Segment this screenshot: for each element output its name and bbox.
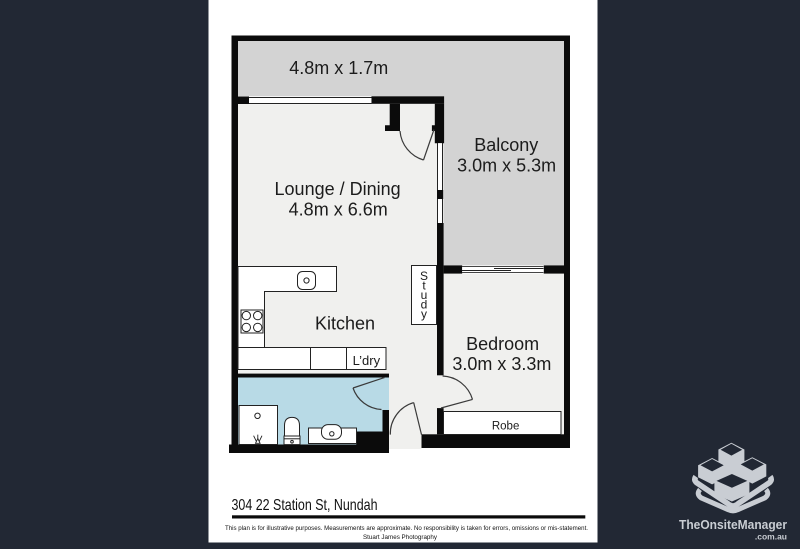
svg-text:Stuart James Photography: Stuart James Photography: [363, 534, 438, 541]
svg-text:4.8m x 6.6m: 4.8m x 6.6m: [289, 199, 388, 219]
svg-text:L’dry: L’dry: [353, 353, 381, 368]
svg-text:Robe: Robe: [492, 420, 520, 432]
svg-text:.com.au: .com.au: [755, 531, 787, 541]
svg-text:Balcony: Balcony: [474, 135, 538, 155]
svg-text:Bedroom: Bedroom: [466, 334, 539, 354]
svg-text:3.0m x 3.3m: 3.0m x 3.3m: [452, 354, 551, 374]
svg-text:Kitchen: Kitchen: [315, 314, 375, 334]
svg-text:This plan is for illustrative: This plan is for illustrative purposes. …: [225, 525, 588, 532]
svg-text:4.8m x 1.7m: 4.8m x 1.7m: [289, 58, 388, 78]
svg-text:Lounge / Dining: Lounge / Dining: [275, 179, 401, 199]
svg-text:y: y: [421, 307, 427, 321]
svg-text:TheOnsiteManager: TheOnsiteManager: [679, 517, 787, 532]
svg-text:3.0m x 5.3m: 3.0m x 5.3m: [457, 156, 556, 176]
svg-text:304 22 Station St, Nundah: 304 22 Station St, Nundah: [232, 497, 378, 514]
